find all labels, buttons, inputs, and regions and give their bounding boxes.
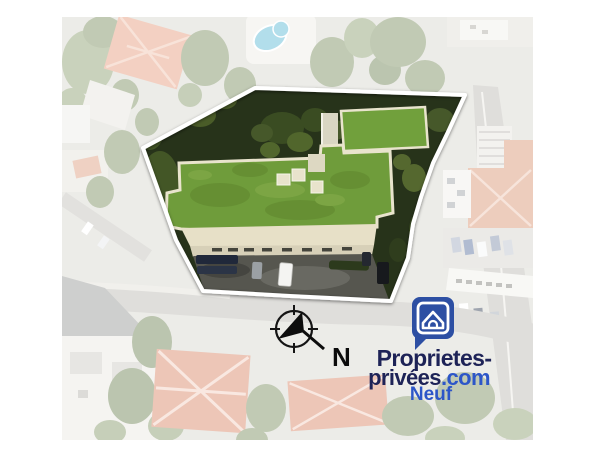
logo-text-neuf: Neuf: [410, 384, 453, 405]
aerial-scene: N Proprietes- privées.com Neuf: [0, 0, 600, 450]
property-aerial-image: N Proprietes- privées.com Neuf: [0, 0, 600, 450]
north-label: N: [332, 342, 351, 372]
roof-beige-notch: [308, 154, 325, 172]
green-roof-upper-block: [341, 107, 428, 151]
